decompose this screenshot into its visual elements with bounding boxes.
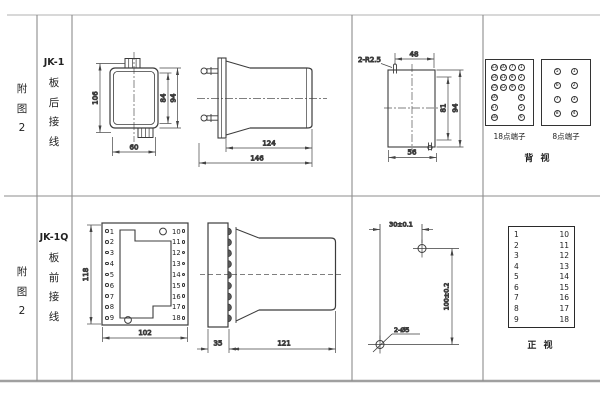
back-view-label: 背 视	[495, 151, 581, 164]
dim-label: 60	[130, 144, 139, 152]
screw-terminal	[228, 315, 231, 322]
front-terminal-right: 13	[172, 260, 185, 268]
dim-label: 124	[262, 140, 276, 148]
dim-label: 81	[440, 104, 448, 113]
dim-label: 2-Ø5	[394, 326, 409, 334]
dim-label: 146	[250, 155, 264, 163]
screw-terminal	[228, 282, 231, 289]
table-cell-left: 9	[514, 315, 519, 325]
table-row: 312	[514, 251, 569, 261]
front-terminal-left: 3	[105, 249, 114, 257]
screw-terminal	[228, 250, 231, 257]
dim-label: 35	[214, 340, 223, 348]
drill-view: 30±0.1 100±0.2 2-Ø5	[368, 221, 459, 354]
table-cell-right: 10	[559, 230, 569, 240]
label-char: 接	[49, 288, 60, 308]
terminal-circle: 15	[491, 84, 498, 91]
screw-terminal	[228, 239, 231, 246]
terminal-circle: 7	[554, 96, 561, 103]
dim-label: 30±0.1	[389, 221, 413, 229]
terminal-circle: 1	[571, 68, 578, 75]
figure-number-bottom: 附图2	[10, 263, 34, 322]
label-char: 附	[17, 263, 28, 283]
terminal-circle: 5	[554, 68, 561, 75]
jk1-front-view: 106 84 94 60	[92, 52, 182, 156]
screw-terminal	[228, 293, 231, 300]
dim-label: 118	[82, 268, 90, 281]
front-terminal-left: 1	[105, 228, 114, 236]
terminal-box-18: 131415161718101112789123456	[485, 59, 534, 126]
terminal-circle: 8	[509, 74, 516, 81]
dim-label: 2-R2.5	[358, 56, 381, 64]
terminal-circle: 6	[518, 114, 525, 121]
model-name: JK-1	[44, 56, 65, 70]
front-terminal-right: 14	[172, 271, 185, 279]
table-cell-right: 13	[559, 262, 569, 272]
terminal-circle: 4	[571, 110, 578, 117]
table-row: 413	[514, 262, 569, 272]
terminal-box-8-label: 8点端子	[541, 131, 591, 142]
terminal-circle: 14	[491, 74, 498, 81]
terminal-circle: 2	[518, 74, 525, 81]
front-terminal-left: 2	[105, 238, 114, 246]
table-cell-left: 5	[514, 272, 519, 282]
table-row: 514	[514, 272, 569, 282]
table-cell-left: 6	[514, 283, 519, 293]
front-terminal-right: 15	[172, 282, 185, 290]
label-char: 前	[49, 269, 60, 289]
jk1q-side-view: 35 121	[197, 223, 341, 353]
dim-label: 102	[138, 329, 151, 337]
front-terminal-right: 18	[172, 314, 185, 322]
table-row: 716	[514, 293, 569, 303]
table-cell-right: 14	[559, 272, 569, 282]
terminal-circle: 2	[571, 82, 578, 89]
terminal-circle: 18	[491, 114, 498, 121]
front-terminal-left: 9	[105, 314, 114, 322]
front-terminal-right: 17	[172, 303, 185, 311]
front-terminal-right: 16	[172, 293, 185, 301]
table-row: 817	[514, 304, 569, 314]
wiring-label: 板前接线	[49, 249, 60, 327]
terminal-circle: 5	[518, 104, 525, 111]
screw-terminal	[228, 272, 231, 279]
model-name: JK-1Q	[40, 231, 69, 245]
screw-terminal	[228, 228, 231, 235]
table-cell-right: 15	[559, 283, 569, 293]
table-cell-left: 8	[514, 304, 519, 314]
terminal-circle: 3	[518, 84, 525, 91]
front-terminal-left: 7	[105, 293, 114, 301]
model-label-bottom: JK-1Q 板前接线	[37, 231, 71, 327]
label-char: 线	[49, 308, 60, 328]
table-cell-right: 11	[559, 241, 569, 251]
table-cell-right: 12	[559, 251, 569, 261]
terminal-box-18-label: 18点端子	[481, 131, 538, 142]
label-char: 附	[17, 80, 28, 100]
dim-label: 48	[410, 51, 419, 59]
table-row: 918	[514, 315, 569, 325]
terminal-circle: 11	[500, 74, 507, 81]
front-terminal-left: 4	[105, 260, 114, 268]
table-row: 615	[514, 283, 569, 293]
terminal-screws	[228, 228, 231, 322]
table-row: 211	[514, 241, 569, 251]
table-cell-left: 7	[514, 293, 519, 303]
label-char: 图	[17, 283, 28, 303]
label-char: 后	[49, 94, 60, 114]
label-char: 接	[49, 113, 60, 133]
front-terminal-right: 12	[172, 249, 185, 257]
terminal-circle: 13	[491, 64, 498, 71]
front-terminal-right: 10	[172, 228, 185, 236]
table-cell-left: 3	[514, 251, 519, 261]
terminal-circle: 16	[491, 94, 498, 101]
label-char: 2	[19, 302, 26, 322]
table-cell-right: 16	[559, 293, 569, 303]
terminal-circle: 17	[491, 104, 498, 111]
table-cell-left: 1	[514, 230, 519, 240]
front-terminal-right: 11	[172, 238, 185, 246]
label-char: 板	[49, 249, 60, 269]
label-char: 2	[19, 119, 26, 139]
terminal-circle: 10	[500, 64, 507, 71]
table-cell-right: 18	[559, 315, 569, 325]
front-terminal-table: 110211312413514615716817918	[508, 226, 575, 328]
figure-page: 106 84 94 60	[0, 0, 600, 400]
dim-label: 106	[92, 91, 100, 105]
terminal-circle: 9	[509, 84, 516, 91]
dim-label: 94	[452, 103, 460, 112]
screw-terminal	[228, 304, 231, 311]
terminal-circle: 12	[500, 84, 507, 91]
wiring-label: 板后接线	[49, 74, 60, 152]
jk1-cutout-view: 2-R2.5 48 81 94 56	[358, 51, 464, 163]
terminal-circle: 4	[518, 94, 525, 101]
terminal-circle: 1	[518, 64, 525, 71]
terminal-circle: 6	[554, 82, 561, 89]
label-char: 图	[17, 100, 28, 120]
dim-label: 84	[160, 93, 168, 102]
terminal-box-8: 56781234	[541, 59, 591, 126]
table-cell-right: 17	[559, 304, 569, 314]
front-view-label: 正 视	[498, 338, 584, 351]
front-terminal-left: 8	[105, 303, 114, 311]
terminal-circle: 8	[554, 110, 561, 117]
label-char: 板	[49, 74, 60, 94]
screw-terminal	[228, 261, 231, 268]
model-label-top: JK-1 板后接线	[38, 56, 70, 152]
table-cell-left: 2	[514, 241, 519, 251]
label-char: 线	[49, 133, 60, 153]
figure-number-top: 附图2	[10, 80, 34, 139]
dim-label: 56	[408, 149, 417, 157]
table-row: 110	[514, 230, 569, 240]
table-cell-left: 4	[514, 262, 519, 272]
front-terminal-left: 5	[105, 271, 114, 279]
terminal-circle: 3	[571, 96, 578, 103]
front-terminal-left: 6	[105, 282, 114, 290]
dim-label: 100±0.2	[443, 283, 451, 311]
jk1-side-view: 124 146	[197, 58, 327, 167]
terminal-circle: 7	[509, 64, 516, 71]
dim-label: 121	[277, 340, 290, 348]
dim-label: 94	[169, 93, 177, 102]
